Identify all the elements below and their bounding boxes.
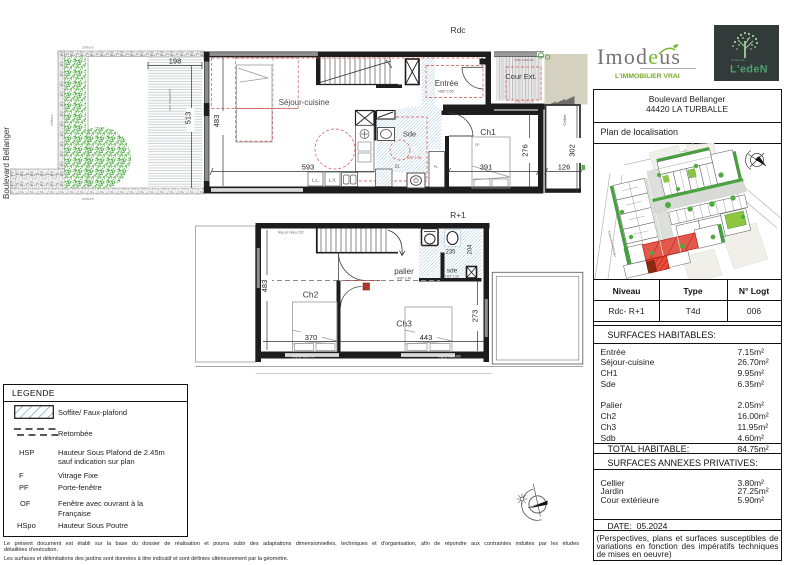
svg-text:HSP 2.20: HSP 2.20: [445, 275, 459, 279]
svg-text:L.V.: L.V.: [329, 178, 336, 183]
svg-text:Cellier: Cellier: [562, 114, 567, 126]
svg-text:126: 126: [558, 163, 571, 172]
svg-text:HSP 2.40: HSP 2.40: [397, 277, 412, 281]
svg-text:HSP 2.36: HSP 2.36: [407, 156, 422, 160]
svg-text:Cour Ext.: Cour Ext.: [505, 72, 536, 81]
svg-text:Rep pl haut 240: Rep pl haut 240: [292, 355, 315, 359]
svg-text:235: 235: [445, 250, 456, 256]
svg-text:513: 513: [184, 112, 193, 125]
svg-text:L'edeN: L'edeN: [730, 64, 768, 76]
svg-text:443: 443: [420, 333, 433, 342]
svg-text:302: 302: [568, 144, 577, 157]
svg-text:L.L.: L.L.: [312, 178, 319, 183]
svg-text:Ch2: Ch2: [303, 290, 319, 300]
svg-text:clôture: clôture: [82, 45, 95, 50]
svg-text:593: 593: [302, 163, 315, 172]
svg-text:clôture: clôture: [82, 196, 95, 201]
svg-text:198: 198: [169, 57, 182, 66]
svg-text:276: 276: [521, 144, 530, 157]
svg-text:Séjour-cuisine: Séjour-cuisine: [279, 98, 330, 107]
svg-text:483: 483: [260, 280, 269, 293]
svg-text:483: 483: [212, 115, 221, 128]
svg-text:Rep pl haut 240: Rep pl haut 240: [438, 355, 461, 359]
svg-text:palier: palier: [394, 267, 414, 276]
svg-text:Rdc: Rdc: [450, 25, 466, 35]
svg-text:HSP 2.50: HSP 2.50: [438, 90, 453, 94]
svg-text:21: 21: [394, 164, 400, 169]
svg-text:R+1: R+1: [450, 210, 466, 220]
svg-text:3060 0161016: 3060 0161016: [514, 100, 534, 104]
svg-text:PL: PL: [434, 165, 438, 169]
svg-text:Ch3: Ch3: [396, 319, 412, 329]
svg-text:mur maçonné: mur maçonné: [168, 89, 172, 111]
svg-text:OF: OF: [475, 143, 479, 147]
svg-text:sde: sde: [447, 268, 458, 275]
svg-text:clôture: clôture: [49, 113, 54, 126]
svg-text:Sde: Sde: [403, 130, 416, 139]
svg-text:Entrée: Entrée: [435, 79, 459, 88]
svg-text:Ch1: Ch1: [480, 127, 496, 137]
svg-text:3060 0161016: 3060 0161016: [514, 58, 534, 62]
svg-text:273: 273: [471, 310, 480, 323]
svg-text:204: 204: [468, 244, 474, 255]
svg-text:Rep pl Velux 222: Rep pl Velux 222: [278, 231, 304, 235]
svg-text:370: 370: [305, 333, 318, 342]
svg-text:Boulevard Bellanger: Boulevard Bellanger: [607, 230, 617, 257]
svg-text:391: 391: [480, 163, 493, 172]
svg-text:le hameau: le hameau: [731, 58, 745, 62]
svg-text:Boulevard Bellanger: Boulevard Bellanger: [2, 127, 11, 199]
